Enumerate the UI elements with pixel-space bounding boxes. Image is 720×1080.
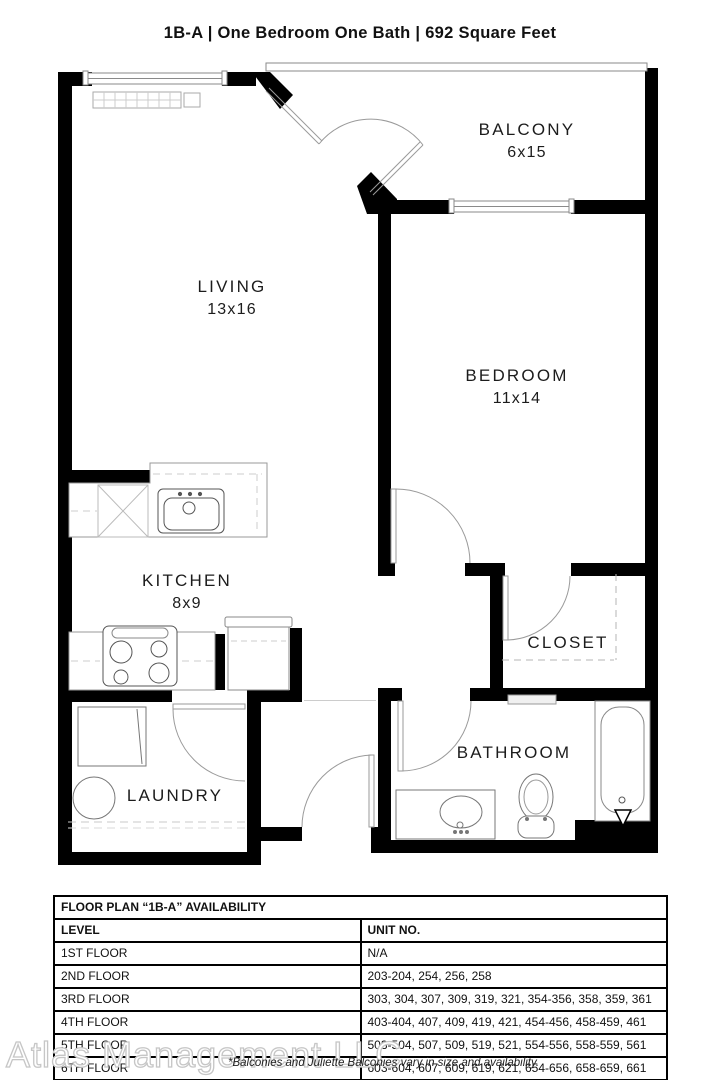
refrigerator xyxy=(225,617,292,690)
availability-title: FLOOR PLAN “1B-A” AVAILABILITY xyxy=(54,896,667,919)
table-header-row: LEVEL UNIT NO. xyxy=(54,919,667,942)
header-level: LEVEL xyxy=(54,919,361,942)
bedroom-door xyxy=(391,489,470,563)
label-laundry: LAUNDRY xyxy=(127,786,223,806)
units-cell: 503-504, 507, 509, 519, 521, 554-556, 55… xyxy=(361,1034,668,1057)
balcony-door xyxy=(266,88,423,195)
wall-balcony-bottom-left xyxy=(380,200,454,214)
wall-stove-stub xyxy=(215,634,225,690)
washer xyxy=(78,707,146,766)
wall-entry-diagonal-upper xyxy=(252,72,293,109)
bathroom-shelf xyxy=(508,695,556,704)
label-closet: CLOSET xyxy=(527,633,608,653)
wall-bathroom-bottom xyxy=(378,840,595,853)
label-balcony: BALCONY 6x15 xyxy=(479,120,576,162)
table-row: 1ST FLOOR N/A xyxy=(54,942,667,965)
wall-bedroom-left xyxy=(378,212,391,563)
wall-laundry-top-right xyxy=(247,690,302,702)
stove xyxy=(103,626,177,686)
label-living: LIVING 13x16 xyxy=(198,277,267,319)
balcony-railing xyxy=(266,63,647,71)
wall-closet-left xyxy=(490,563,503,701)
living-heater-vent xyxy=(93,92,200,108)
level-cell: 1ST FLOOR xyxy=(54,942,361,965)
laundry-door xyxy=(173,704,245,781)
table-row: 4TH FLOOR 403-404, 407, 409, 419, 421, 4… xyxy=(54,1011,667,1034)
wall-laundry-right xyxy=(247,702,261,865)
units-cell: 403-404, 407, 409, 419, 421, 454-456, 45… xyxy=(361,1011,668,1034)
wall-bottom-outer xyxy=(58,852,261,865)
wall-entry-stub-left xyxy=(261,827,302,841)
label-bedroom: BEDROOM 11x14 xyxy=(465,366,568,408)
units-cell: N/A xyxy=(361,942,668,965)
balcony-disclaimer-note: *Balconies and Juliette Balconies vary i… xyxy=(228,1057,539,1069)
water-heater xyxy=(73,777,115,819)
bathroom-fixtures xyxy=(396,695,650,839)
wall-left-outer xyxy=(58,72,72,865)
wall-bedroom-bottom-right xyxy=(571,563,658,576)
toilet xyxy=(518,774,554,838)
label-kitchen: KITCHEN 8x9 xyxy=(142,571,232,613)
living-window xyxy=(83,71,227,85)
wall-living-kitchen-stub xyxy=(69,470,150,483)
bedroom-window xyxy=(449,199,574,213)
vanity-sink xyxy=(396,790,495,839)
kitchen-stove-counter xyxy=(69,626,215,690)
level-cell: 3RD FLOOR xyxy=(54,988,361,1011)
bathtub xyxy=(595,701,650,821)
floor-plan-page: 1B-A | One Bedroom One Bath | 692 Square… xyxy=(0,0,720,1080)
wall-laundry-top-left xyxy=(58,690,172,702)
level-cell: 2ND FLOOR xyxy=(54,965,361,988)
table-row: 3RD FLOOR 303, 304, 307, 309, 319, 321, … xyxy=(54,988,667,1011)
wall-balcony-bottom-right xyxy=(571,200,658,214)
closet-door xyxy=(503,576,570,640)
wall-entry-corner xyxy=(371,827,391,853)
label-bathroom: BATHROOM xyxy=(457,743,572,763)
wall-bottom-right-corner xyxy=(575,820,658,853)
level-cell: 4TH FLOOR xyxy=(54,1011,361,1034)
units-cell: 303, 304, 307, 309, 319, 321, 354-356, 3… xyxy=(361,988,668,1011)
floor-plan-drawing xyxy=(0,0,720,890)
table-title-row: FLOOR PLAN “1B-A” AVAILABILITY xyxy=(54,896,667,919)
units-cell: 203-204, 254, 256, 258 xyxy=(361,965,668,988)
wall-bathroom-top-right xyxy=(470,688,658,701)
laundry-fixtures xyxy=(68,707,246,828)
watermark-logo: Atlas Management LLC xyxy=(6,1034,402,1076)
entry-door xyxy=(302,755,374,827)
header-unit-no: UNIT NO. xyxy=(361,919,668,942)
wall-bedroom-sw-corner xyxy=(378,563,395,576)
table-row: 2ND FLOOR 203-204, 254, 256, 258 xyxy=(54,965,667,988)
